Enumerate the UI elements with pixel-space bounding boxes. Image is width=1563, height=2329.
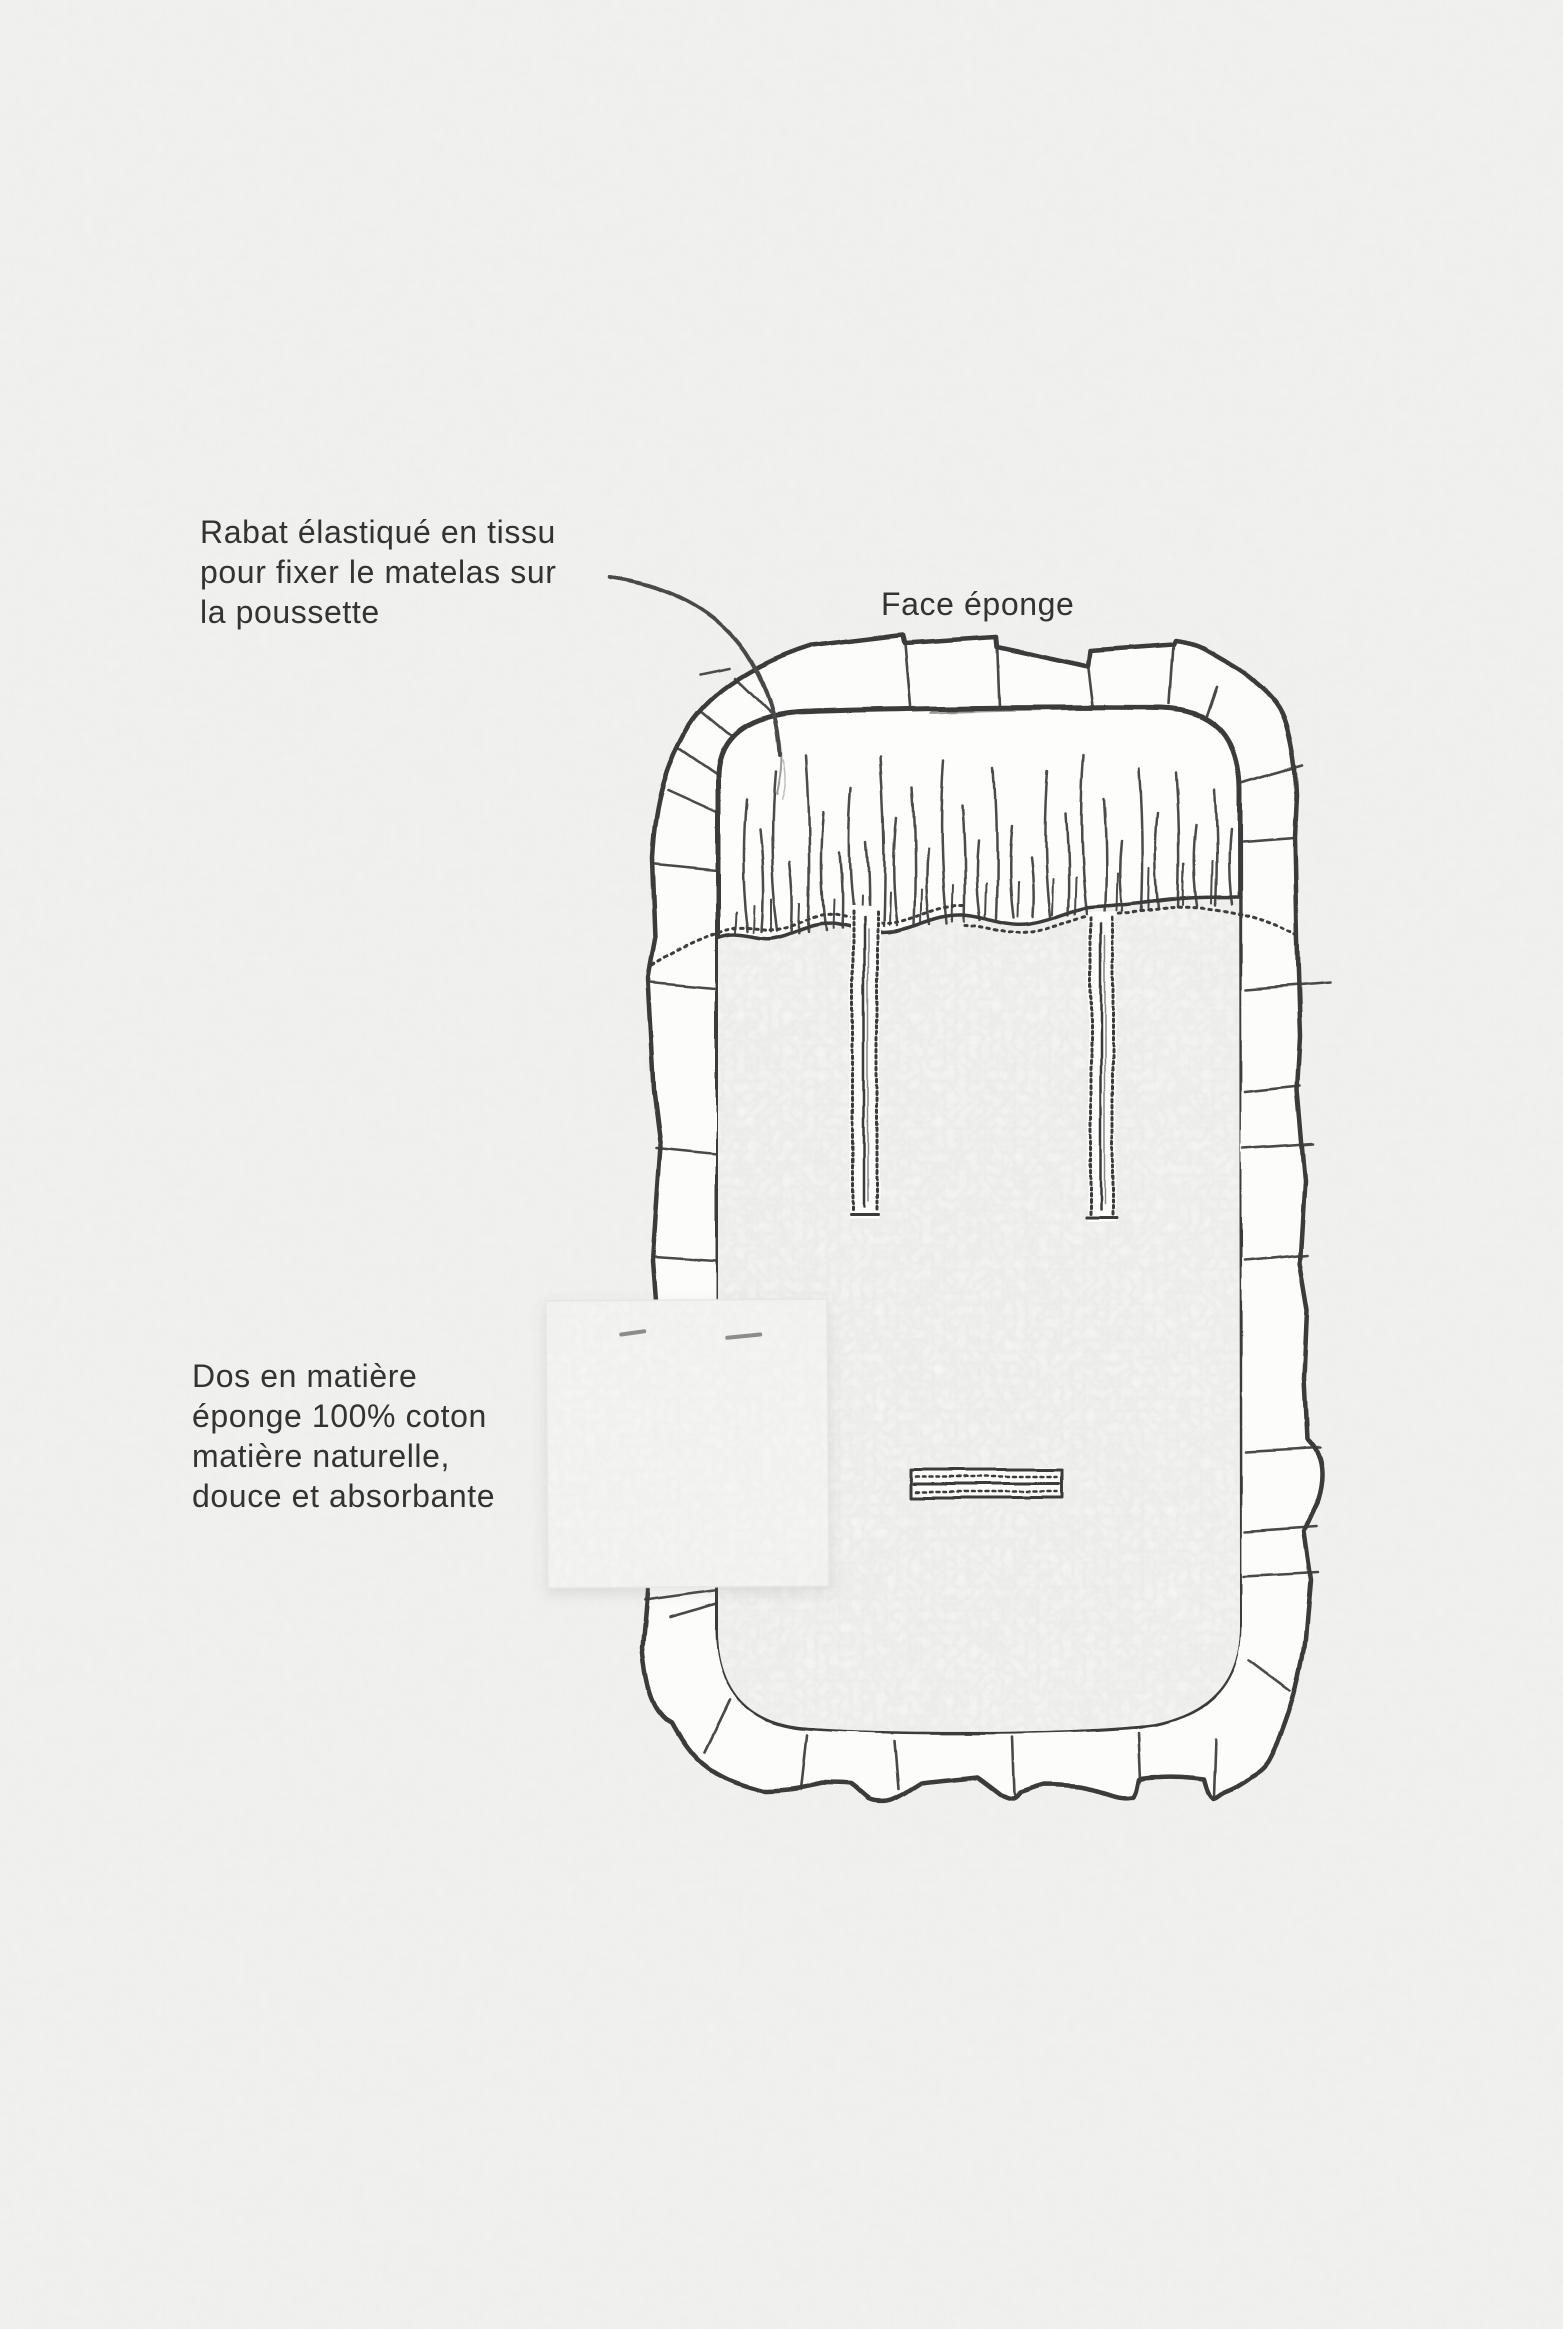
rabat-line-2: pour fixer le matelas sur — [200, 552, 556, 592]
dos-line-1: Dos en matière — [192, 1356, 495, 1396]
dos-line-4: douce et absorbante — [192, 1476, 495, 1516]
dos-line-2: éponge 100% coton — [192, 1396, 495, 1436]
strap-slot-right — [1087, 912, 1117, 1222]
mattress-illustration — [0, 0, 1563, 2329]
dos-line-3: matière naturelle, — [192, 1436, 495, 1476]
face-eponge-label: Face éponge — [881, 584, 1074, 624]
rabat-annotation: Rabat élastiqué en tissu pour fixer le m… — [200, 512, 556, 632]
dos-annotation: Dos en matière éponge 100% coton matière… — [192, 1356, 495, 1516]
rabat-line-1: Rabat élastiqué en tissu — [200, 512, 556, 552]
product-diagram: Rabat élastiqué en tissu pour fixer le m… — [0, 0, 1563, 2329]
strap-slot-left — [850, 906, 880, 1218]
fabric-swatch — [546, 1299, 829, 1588]
buckle-slot — [910, 1468, 1064, 1499]
rabat-line-3: la poussette — [200, 592, 556, 632]
